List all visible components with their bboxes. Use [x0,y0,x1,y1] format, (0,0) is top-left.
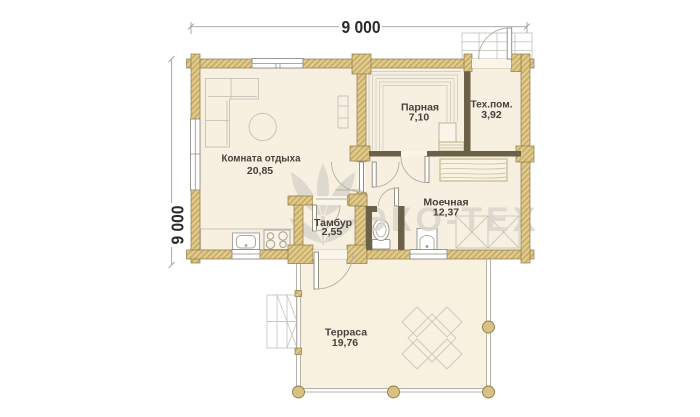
svg-text:3,92: 3,92 [481,109,502,121]
svg-text:Комната отдыха: Комната отдыха [222,153,301,165]
svg-text:9 000: 9 000 [342,17,381,37]
svg-text:9 000: 9 000 [168,205,188,244]
svg-text:19,76: 19,76 [332,337,358,349]
svg-text:2,55: 2,55 [322,226,343,238]
svg-text:7,10: 7,10 [409,112,430,124]
svg-text:12,37: 12,37 [433,207,459,219]
svg-text:20,85: 20,85 [247,165,273,177]
